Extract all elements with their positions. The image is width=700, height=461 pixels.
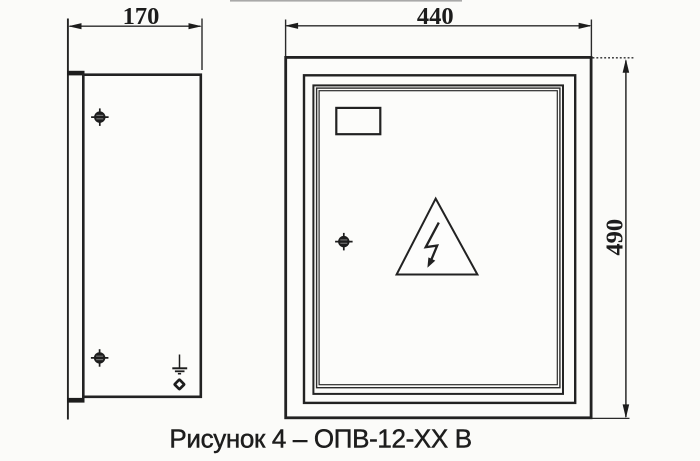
svg-text:170: 170	[123, 3, 160, 30]
svg-text:Рисунок 4 – ОПВ-12-ХХ В: Рисунок 4 – ОПВ-12-ХХ В	[169, 423, 471, 453]
svg-text:440: 440	[417, 3, 454, 30]
svg-text:490: 490	[601, 219, 628, 256]
